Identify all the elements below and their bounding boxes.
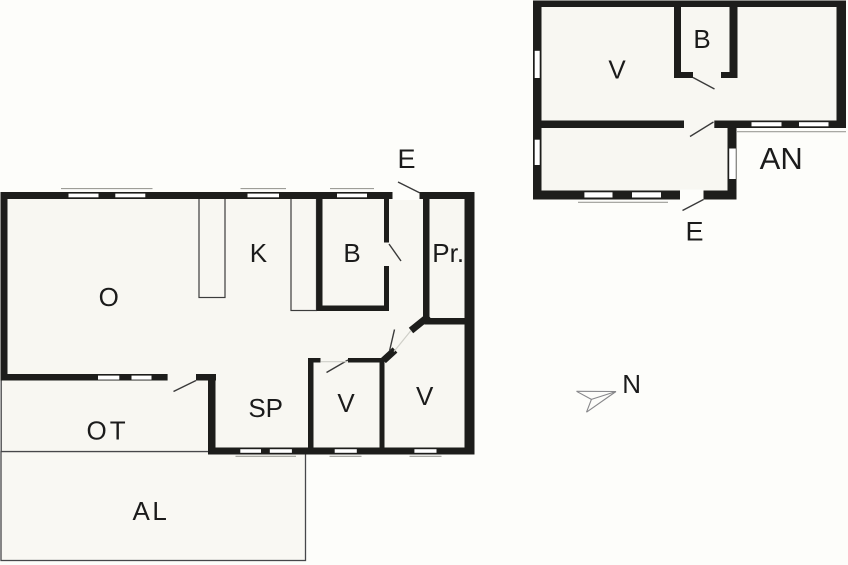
svg-text:N: N xyxy=(622,369,641,399)
svg-text:Pr.: Pr. xyxy=(432,238,464,268)
svg-text:B: B xyxy=(343,238,360,268)
svg-text:V: V xyxy=(416,381,434,411)
svg-text:SP: SP xyxy=(248,393,283,423)
svg-text:E: E xyxy=(397,144,415,174)
svg-text:OT: OT xyxy=(87,416,129,446)
svg-text:AL: AL xyxy=(132,496,169,526)
svg-text:AN: AN xyxy=(760,141,803,176)
svg-text:K: K xyxy=(250,238,268,268)
svg-text:O: O xyxy=(99,282,119,312)
svg-text:V: V xyxy=(337,388,355,418)
svg-text:E: E xyxy=(685,217,703,247)
svg-text:B: B xyxy=(693,24,710,54)
svg-text:V: V xyxy=(608,55,626,85)
